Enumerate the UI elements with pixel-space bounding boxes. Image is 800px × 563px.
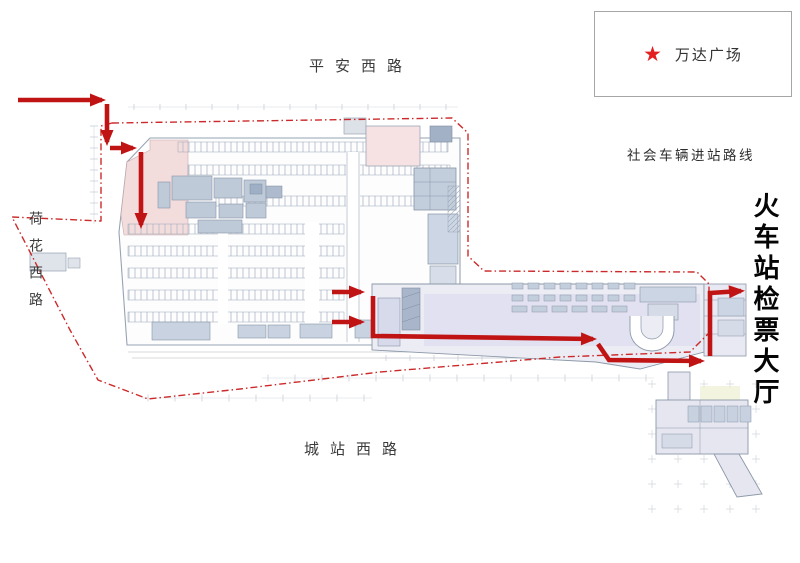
legend-label: 万达广场 [675,44,743,65]
road-label-chengzhan-west: 城站西路 [304,438,408,459]
road-label-hehua-west: 荷花西路 [26,211,46,319]
vehicle-route-note: 社会车辆进站路线 [627,144,755,164]
road-label-pingan-west: 平安西路 [309,55,413,76]
site-plan-page: 平安西路 荷花西路 城站西路 社会车辆进站路线 火车站检票大厅 ★ 万达广场 [0,0,800,563]
annex-rooms [688,406,751,422]
wanda-plaza-star-icon: ★ [643,44,662,65]
legend-box: ★ 万达广场 [594,11,792,97]
destination-label-ticket-hall: 火车站检票大厅 [747,192,784,409]
station-hall [372,283,746,369]
